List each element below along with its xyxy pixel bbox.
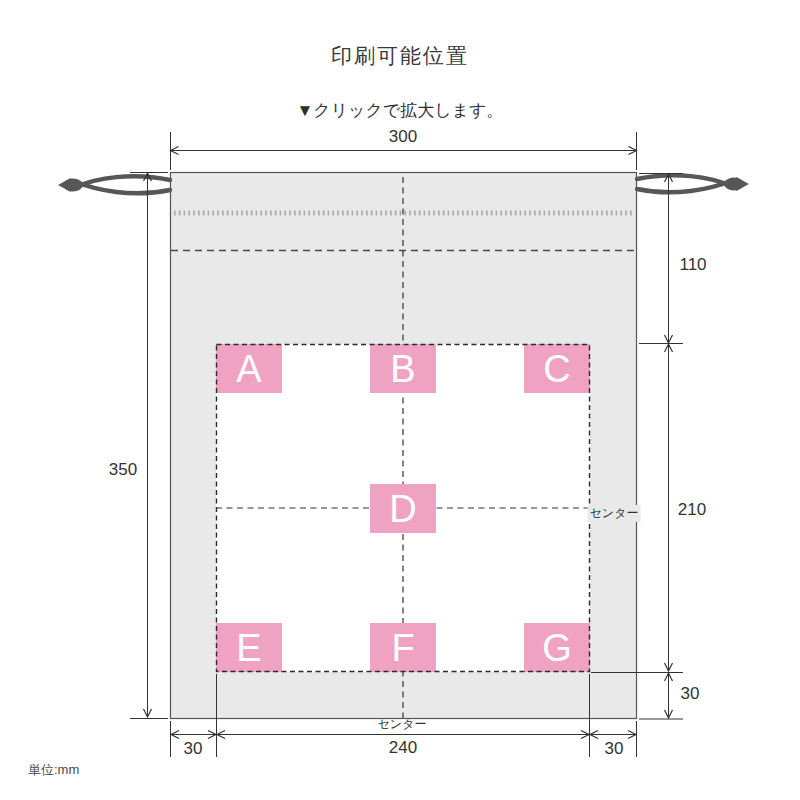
dim-label-bottom-left-margin: 30 — [184, 739, 203, 759]
dim-label-top-offset: 110 — [679, 255, 706, 275]
dim-label-print-height: 210 — [678, 500, 706, 520]
printable-position-diagram[interactable]: 印刷可能位置 ▼クリックで拡大します。 A B C D E F — [0, 0, 800, 800]
dim-label-bottom-offset: 30 — [681, 684, 700, 704]
extension-lines — [130, 132, 683, 757]
unit-note: 単位:mm — [28, 761, 79, 779]
dimension-lines — [0, 0, 800, 800]
center-label-right: センター — [588, 505, 641, 522]
dimension-arrows — [148, 151, 669, 735]
print-area-border — [217, 345, 590, 672]
dim-label-print-width: 240 — [389, 738, 417, 758]
dim-label-bag-width: 300 — [389, 127, 417, 147]
dim-label-bottom-right-margin: 30 — [605, 739, 624, 759]
center-label-bottom: センター — [378, 716, 427, 733]
dim-label-bag-height: 350 — [109, 460, 137, 480]
